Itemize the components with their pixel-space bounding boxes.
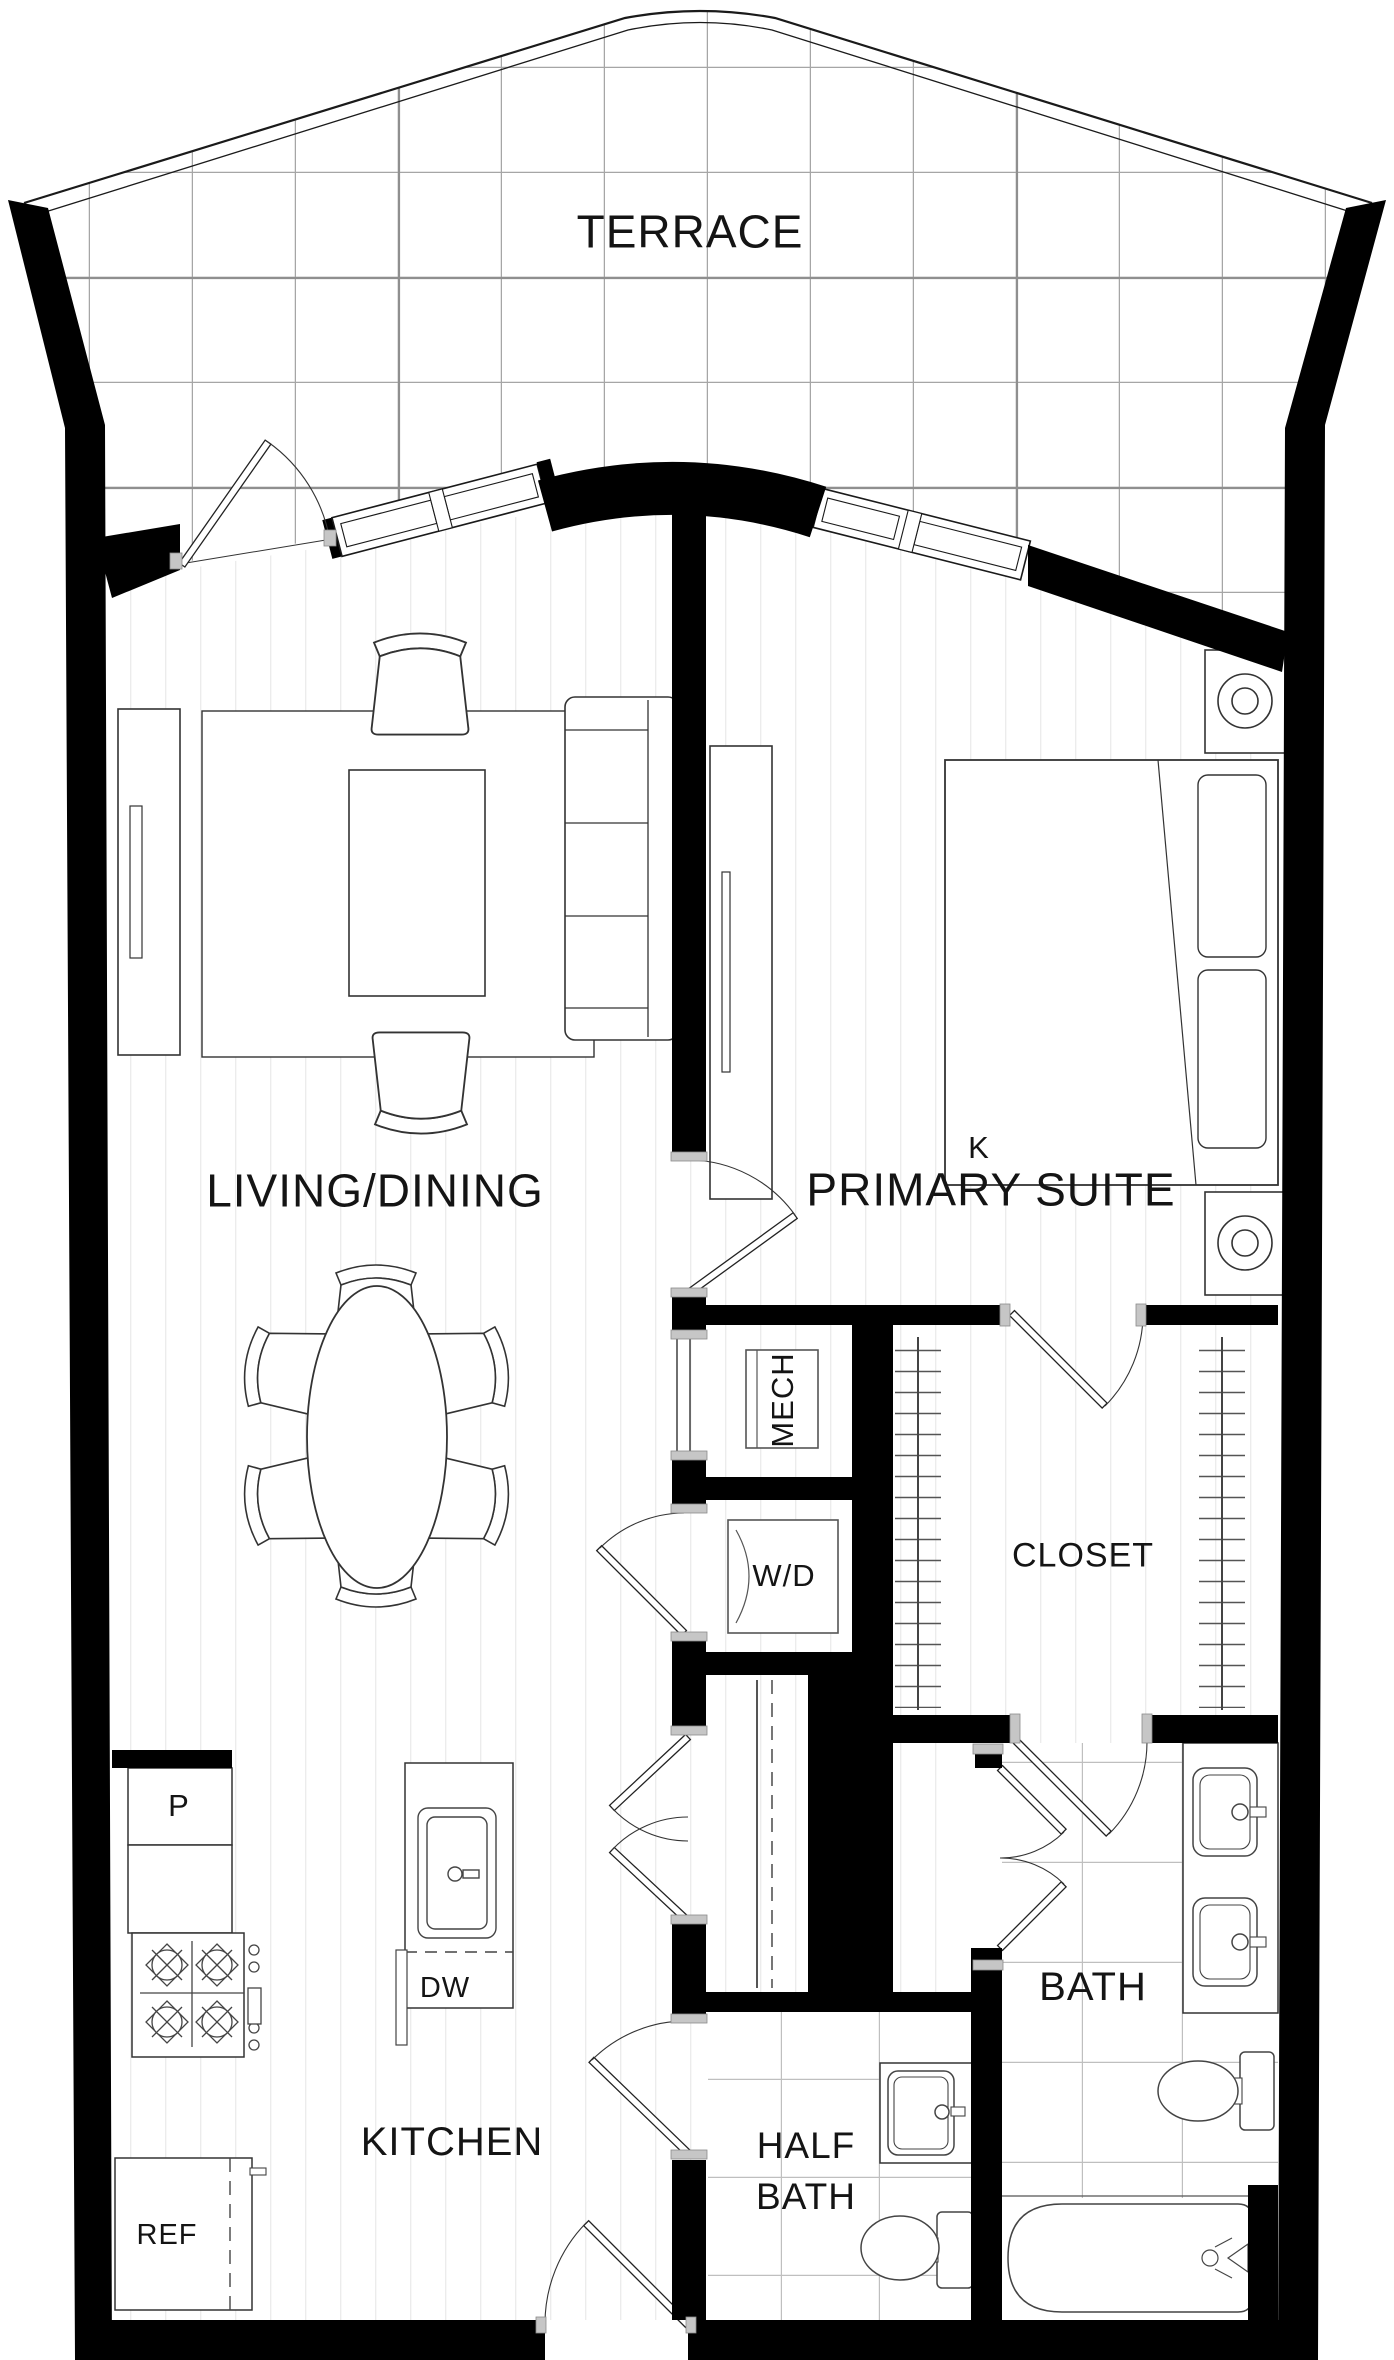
exterior-wall-bottom <box>75 2320 545 2360</box>
island-sink <box>418 1808 496 1938</box>
room-label-kitchen: KITCHEN <box>361 2120 544 2164</box>
tub-faucet <box>1202 2250 1218 2266</box>
room-label-half-bath: HALF BATH <box>731 2120 881 2222</box>
burner <box>146 1944 188 1986</box>
bathtub <box>1008 2204 1252 2312</box>
room-label-terrace: TERRACE <box>577 207 804 258</box>
room-label-bath: BATH <box>1039 1965 1147 2009</box>
burner <box>196 1944 238 1986</box>
faucet <box>935 2105 949 2119</box>
floor-plan: TERRACE LIVING/DINING PRIMARY SUITE K ME… <box>0 0 1394 2360</box>
pillow <box>1198 970 1266 1148</box>
coffee-table <box>349 770 485 996</box>
double-vanity <box>1183 1743 1278 2013</box>
appliance-label-washer-dryer: W/D <box>752 1559 815 1593</box>
wall-bath-north <box>878 1715 1016 1743</box>
nightstand <box>1205 1192 1285 1295</box>
range <box>132 1933 261 2057</box>
tv <box>130 806 142 958</box>
exterior-wall-bottom <box>688 2320 1318 2360</box>
wall-half-bath-north <box>672 1992 1002 2012</box>
room-label-primary-suite: PRIMARY SUITE <box>806 1165 1175 1216</box>
vanity-sink <box>880 2063 972 2163</box>
faucet <box>1232 1934 1248 1950</box>
burner <box>196 2001 238 2043</box>
wall-mech-north <box>672 1305 864 1325</box>
wall-closet-north <box>862 1305 1007 1325</box>
exterior-wall-left <box>8 200 112 2360</box>
base-cabinet <box>128 1845 232 1933</box>
wall-half-bath-east <box>971 1948 1002 2320</box>
wall-wd-south <box>672 1652 860 1675</box>
faucet <box>448 1867 462 1881</box>
appliance-label-dishwasher: DW <box>420 1973 470 2005</box>
mech-door <box>677 1338 690 1452</box>
exterior-wall-right <box>1278 200 1386 2360</box>
room-label-mech: MECH <box>766 1352 800 1447</box>
dishwasher-door <box>396 1950 407 2045</box>
bed-size-label: K <box>968 1131 990 1165</box>
king-bed <box>945 760 1278 1185</box>
wall-living-primary <box>672 510 706 1160</box>
appliance-label-refrigerator: REF <box>137 2220 198 2252</box>
armchair <box>372 633 469 734</box>
room-label-living-dining: LIVING/DINING <box>206 1166 544 1217</box>
cabinet-label-pantry: P <box>168 1789 190 1823</box>
media-console <box>118 709 180 1055</box>
dining-table <box>307 1286 447 1588</box>
sofa <box>565 697 678 1040</box>
armchair <box>373 1032 470 1133</box>
burner <box>146 2001 188 2043</box>
dresser <box>710 746 772 1199</box>
wall-kitchen-stub <box>112 1750 232 1768</box>
pillow <box>1198 775 1266 957</box>
wall-tub-corner <box>1248 2185 1278 2325</box>
curved-wall <box>545 488 818 512</box>
faucet <box>1232 1804 1248 1820</box>
room-label-closet: CLOSET <box>1012 1537 1154 1574</box>
